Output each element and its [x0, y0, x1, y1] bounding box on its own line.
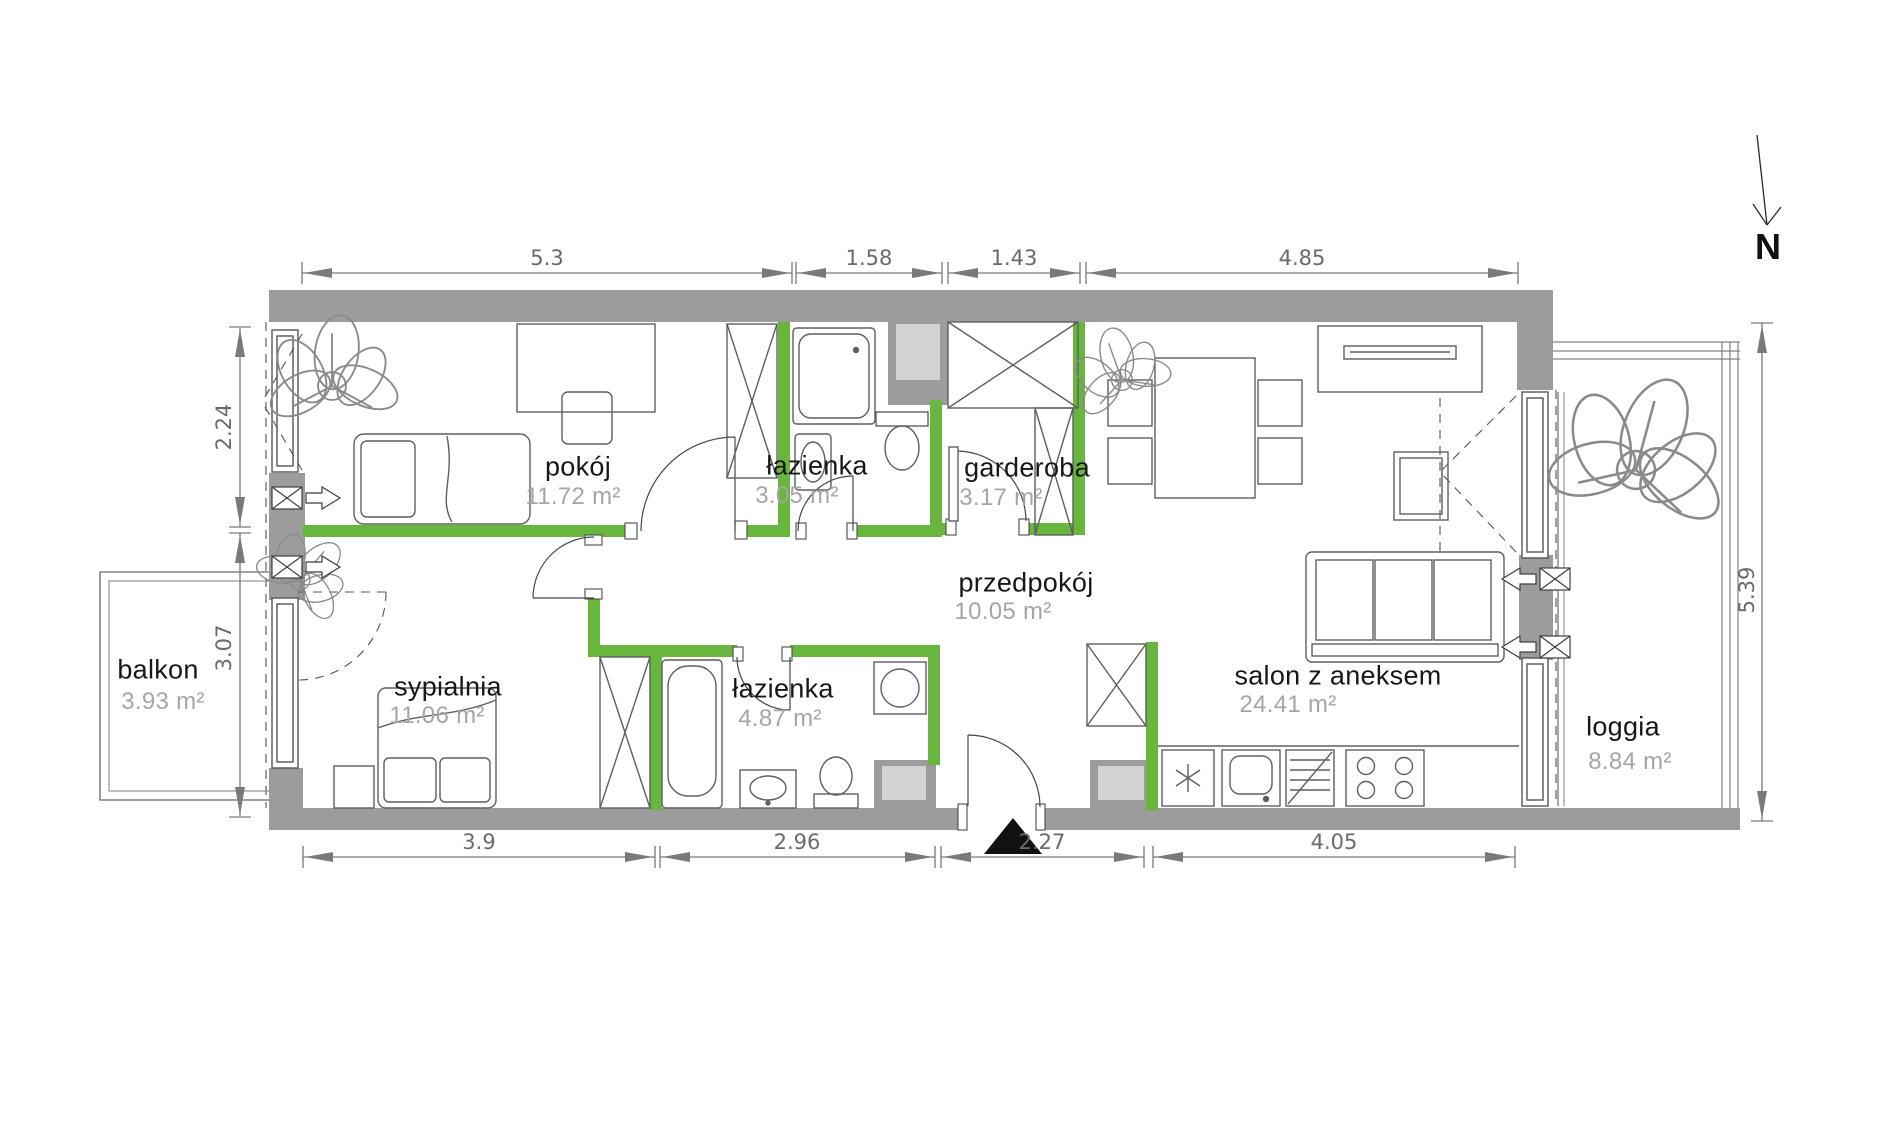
sofa: [1306, 552, 1504, 662]
balcony-outline: [100, 572, 269, 800]
nightstand: [334, 766, 374, 808]
bed-double: [378, 688, 496, 808]
fridge: [1162, 750, 1214, 806]
floor-plan: pokój 11.72 m² łazienka 3.05 m² garderob…: [0, 0, 1900, 1131]
washing-machine: [874, 662, 926, 714]
tv-sideboard: [1318, 326, 1482, 392]
dishwasher: [1286, 750, 1334, 806]
wardrobe-wide: [948, 322, 1078, 408]
wardrobe-bedroom: [600, 657, 650, 808]
bathtub: [662, 660, 722, 808]
toilet: [876, 412, 928, 470]
hall-wardrobe: [1087, 644, 1146, 726]
loggia-outline: [1553, 342, 1740, 808]
wardrobe-tall: [727, 324, 777, 478]
shower: [793, 328, 875, 424]
kitchen-sink: [1222, 750, 1280, 806]
entrance-marker: [984, 818, 1042, 854]
washbasin: [795, 434, 831, 490]
desk: [517, 324, 655, 444]
dining-table: [1155, 358, 1255, 498]
stove: [1346, 750, 1424, 806]
bathroom-sink: [740, 770, 796, 808]
interior-partitions: [303, 322, 1158, 810]
wardrobe-side: [1035, 408, 1073, 535]
dining-chairs: [1108, 380, 1302, 484]
toilet-2: [814, 757, 858, 808]
floor-plan-drawing: [0, 0, 1900, 1131]
bed-single: [354, 434, 530, 524]
north-arrow-icon: [1753, 135, 1781, 225]
